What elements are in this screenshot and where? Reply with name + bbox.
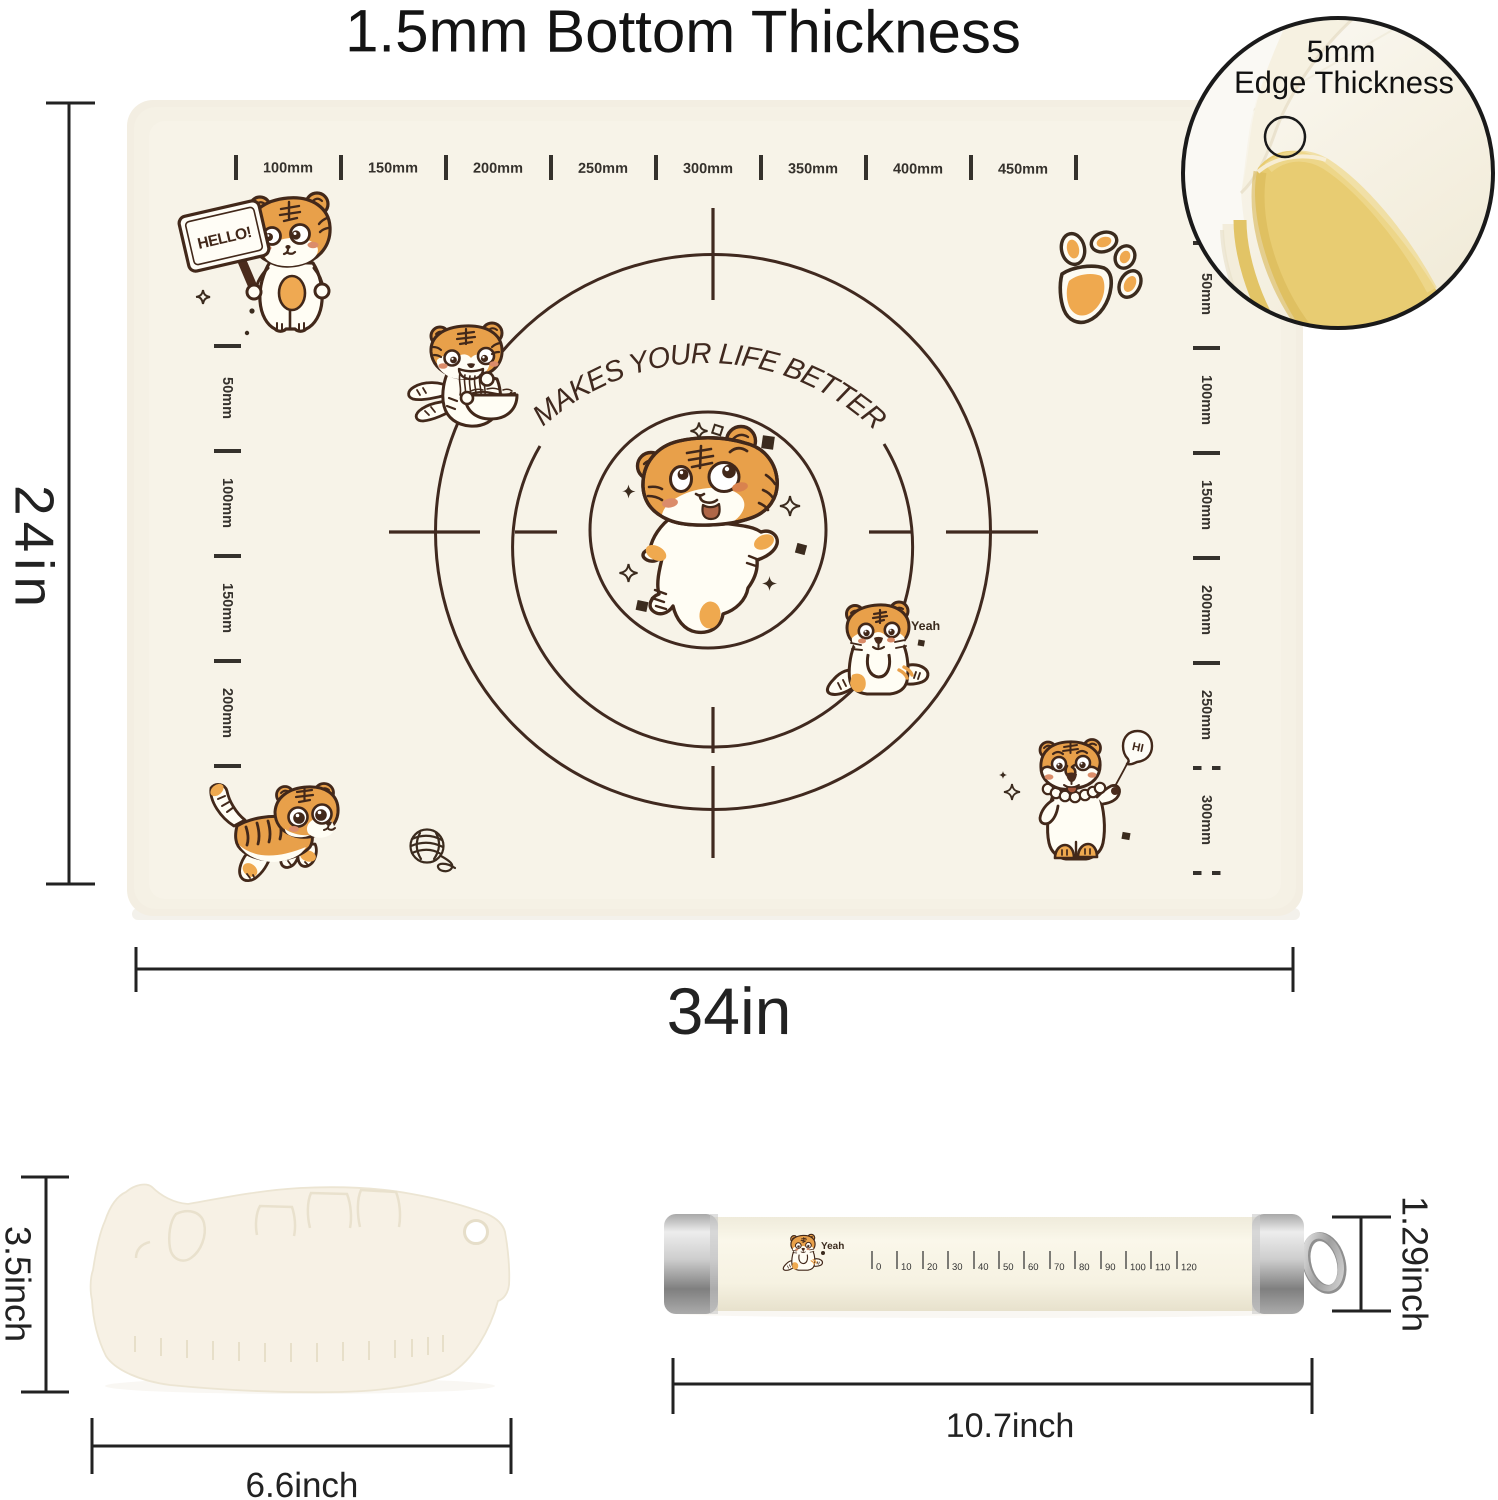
svg-text:HI: HI <box>1131 741 1145 755</box>
svg-text:200mm: 200mm <box>473 161 523 177</box>
svg-text:90: 90 <box>1105 1262 1116 1273</box>
svg-text:300mm: 300mm <box>1198 795 1214 845</box>
svg-text:24in: 24in <box>3 485 65 613</box>
svg-text:150mm: 150mm <box>1198 480 1214 530</box>
svg-text:110: 110 <box>1155 1262 1170 1273</box>
svg-text:10.7inch: 10.7inch <box>946 1407 1075 1445</box>
svg-text:Yeah: Yeah <box>911 619 940 633</box>
svg-text:150mm: 150mm <box>219 583 235 633</box>
svg-text:100mm: 100mm <box>219 478 235 528</box>
svg-text:5mm: 5mm <box>1307 34 1376 69</box>
svg-text:30: 30 <box>952 1262 963 1273</box>
svg-text:70: 70 <box>1054 1262 1065 1273</box>
svg-text:150mm: 150mm <box>368 160 418 176</box>
svg-text:40: 40 <box>978 1262 989 1273</box>
svg-text:34in: 34in <box>667 974 792 1048</box>
svg-text:1.5mm Bottom Thickness: 1.5mm Bottom Thickness <box>345 0 1021 66</box>
svg-text:10: 10 <box>901 1262 912 1273</box>
svg-text:100mm: 100mm <box>1198 375 1214 425</box>
svg-text:6.6inch: 6.6inch <box>246 1466 359 1500</box>
svg-text:3.5inch: 3.5inch <box>0 1226 38 1342</box>
svg-text:80: 80 <box>1079 1262 1090 1273</box>
svg-text:20: 20 <box>927 1262 938 1273</box>
svg-text:50mm: 50mm <box>1198 273 1214 315</box>
svg-text:100: 100 <box>1130 1262 1146 1273</box>
svg-text:50: 50 <box>1003 1262 1014 1273</box>
svg-text:300mm: 300mm <box>683 161 733 177</box>
svg-text:200mm: 200mm <box>219 688 235 738</box>
svg-text:1.29inch: 1.29inch <box>1394 1196 1435 1332</box>
svg-text:120: 120 <box>1181 1262 1197 1273</box>
svg-text:250mm: 250mm <box>1198 690 1214 740</box>
svg-text:50mm: 50mm <box>219 377 235 419</box>
svg-text:200mm: 200mm <box>1198 585 1214 635</box>
svg-text:400mm: 400mm <box>893 161 943 177</box>
svg-text:Yeah: Yeah <box>821 1241 844 1252</box>
svg-text:450mm: 450mm <box>998 162 1048 178</box>
svg-text:350mm: 350mm <box>788 161 838 177</box>
svg-text:Edge Thickness: Edge Thickness <box>1234 65 1454 100</box>
svg-text:100mm: 100mm <box>263 160 313 176</box>
svg-text:0: 0 <box>876 1262 881 1273</box>
svg-text:60: 60 <box>1028 1262 1039 1273</box>
svg-text:250mm: 250mm <box>578 161 628 177</box>
